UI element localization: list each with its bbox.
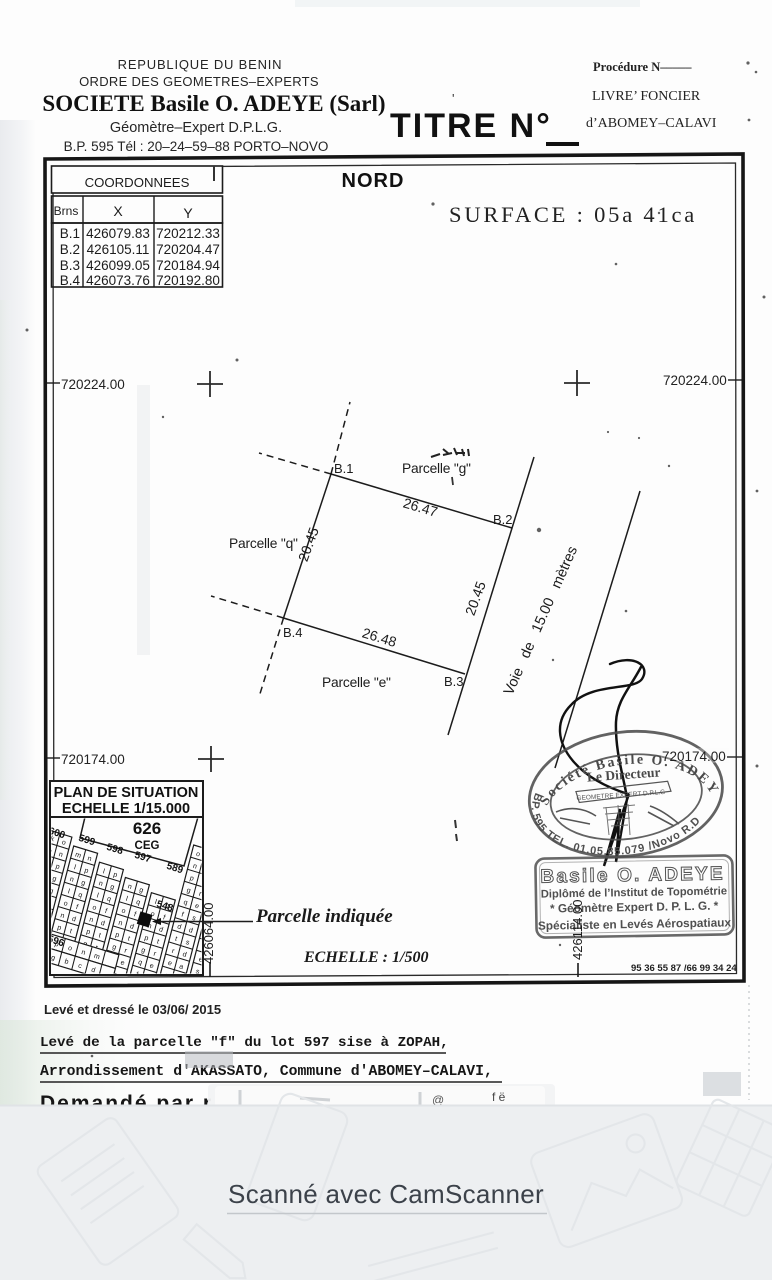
svg-text:426064.00: 426064.00 xyxy=(201,903,216,964)
svg-text:PLAN DE SITUATION: PLAN DE SITUATION xyxy=(54,785,199,801)
svg-text:Parcelle "q": Parcelle "q" xyxy=(229,536,298,551)
svg-text:Y: Y xyxy=(183,205,193,221)
svg-text:SOCIETE Basile O. ADEYE (Sarl): SOCIETE Basile O. ADEYE (Sarl) xyxy=(42,91,385,116)
svg-text:LIVRE’ FONCIER: LIVRE’ FONCIER xyxy=(592,89,701,104)
svg-text:B.P. 595 Tél : 20–24–59–88: B.P. 595 Tél : 20–24–59–88 PORTO–NOVO xyxy=(64,139,329,154)
svg-text:Basile O. ADEYE: Basile O. ADEYE xyxy=(540,863,725,887)
svg-text:426079.83: 426079.83 xyxy=(86,226,150,241)
svg-text:Procédure N–––––: Procédure N––––– xyxy=(593,60,692,74)
svg-text:720184.94: 720184.94 xyxy=(156,258,220,273)
svg-text:ORDRE DES GEOMETRES–EXPERTS: ORDRE DES GEOMETRES–EXPERTS xyxy=(79,74,319,89)
svg-text:426114.00: 426114.00 xyxy=(570,900,585,961)
svg-text:Parcelle "g": Parcelle "g" xyxy=(402,461,471,476)
svg-text:B.4: B.4 xyxy=(60,273,81,288)
svg-text:Scanné avec CamScanner: Scanné avec CamScanner xyxy=(228,1179,544,1209)
svg-text:ECHELLE 1/15.000: ECHELLE 1/15.000 xyxy=(62,801,190,817)
svg-text:B.1: B.1 xyxy=(60,226,80,241)
svg-text:426073.76: 426073.76 xyxy=(86,273,150,288)
svg-text:X: X xyxy=(113,203,123,219)
svg-text:Géomètre–Expert D.P.L.G.: Géomètre–Expert D.P.L.G. xyxy=(110,120,282,136)
svg-text:B.2: B.2 xyxy=(60,242,80,257)
svg-text:B.4: B.4 xyxy=(283,625,303,640)
svg-text:626: 626 xyxy=(133,819,161,838)
svg-text:Brns: Brns xyxy=(54,204,79,218)
svg-text:720224.00: 720224.00 xyxy=(663,373,727,388)
svg-text:720174.00: 720174.00 xyxy=(662,749,726,764)
svg-text:426099.05: 426099.05 xyxy=(86,258,150,273)
svg-text:426105.11: 426105.11 xyxy=(87,242,150,257)
svg-text:720192.80: 720192.80 xyxy=(156,273,220,288)
svg-text:Arrondissement d'AKASSATO, Com: Arrondissement d'AKASSATO, Commune d'ABO… xyxy=(40,1064,493,1080)
svg-text:Levé et dressé le 03/06/ 2015: Levé et dressé le 03/06/ 2015 xyxy=(44,1002,221,1017)
svg-text:720204.47: 720204.47 xyxy=(156,242,220,257)
svg-text:720224.00: 720224.00 xyxy=(61,377,125,392)
svg-text:720212.33: 720212.33 xyxy=(156,226,220,241)
svg-text:f ë: f ë xyxy=(492,1090,506,1104)
svg-text:B.3: B.3 xyxy=(60,258,80,273)
svg-text:Levé de la parcelle "f" du lot: Levé de la parcelle "f" du lot 597 sise … xyxy=(40,1035,449,1051)
svg-text:B.2: B.2 xyxy=(493,512,513,527)
svg-text:COORDONNEES: COORDONNEES xyxy=(85,175,190,190)
svg-text:NORD: NORD xyxy=(342,170,405,192)
svg-text:720174.00: 720174.00 xyxy=(61,752,125,767)
svg-text:TITRE N°: TITRE N° xyxy=(390,107,552,145)
svg-text:B.1: B.1 xyxy=(334,461,354,476)
svg-text:Parcelle "e": Parcelle "e" xyxy=(322,675,391,690)
svg-text:SURFACE : 05a 41ca: SURFACE : 05a 41ca xyxy=(449,202,697,227)
svg-text:': ' xyxy=(452,91,454,106)
svg-text:ECHELLE : 1/500: ECHELLE : 1/500 xyxy=(303,949,428,966)
svg-text:Parcelle indiquée: Parcelle indiquée xyxy=(255,906,393,927)
svg-text:REPUBLIQUE DU BENIN: REPUBLIQUE DU BENIN xyxy=(118,57,283,72)
svg-text:B.3: B.3 xyxy=(444,674,464,689)
svg-text:d’ABOMEY–CALAVI: d’ABOMEY–CALAVI xyxy=(586,116,717,131)
svg-text:95 36 55 87 /66 99 34 24: 95 36 55 87 /66 99 34 24 xyxy=(631,963,737,974)
